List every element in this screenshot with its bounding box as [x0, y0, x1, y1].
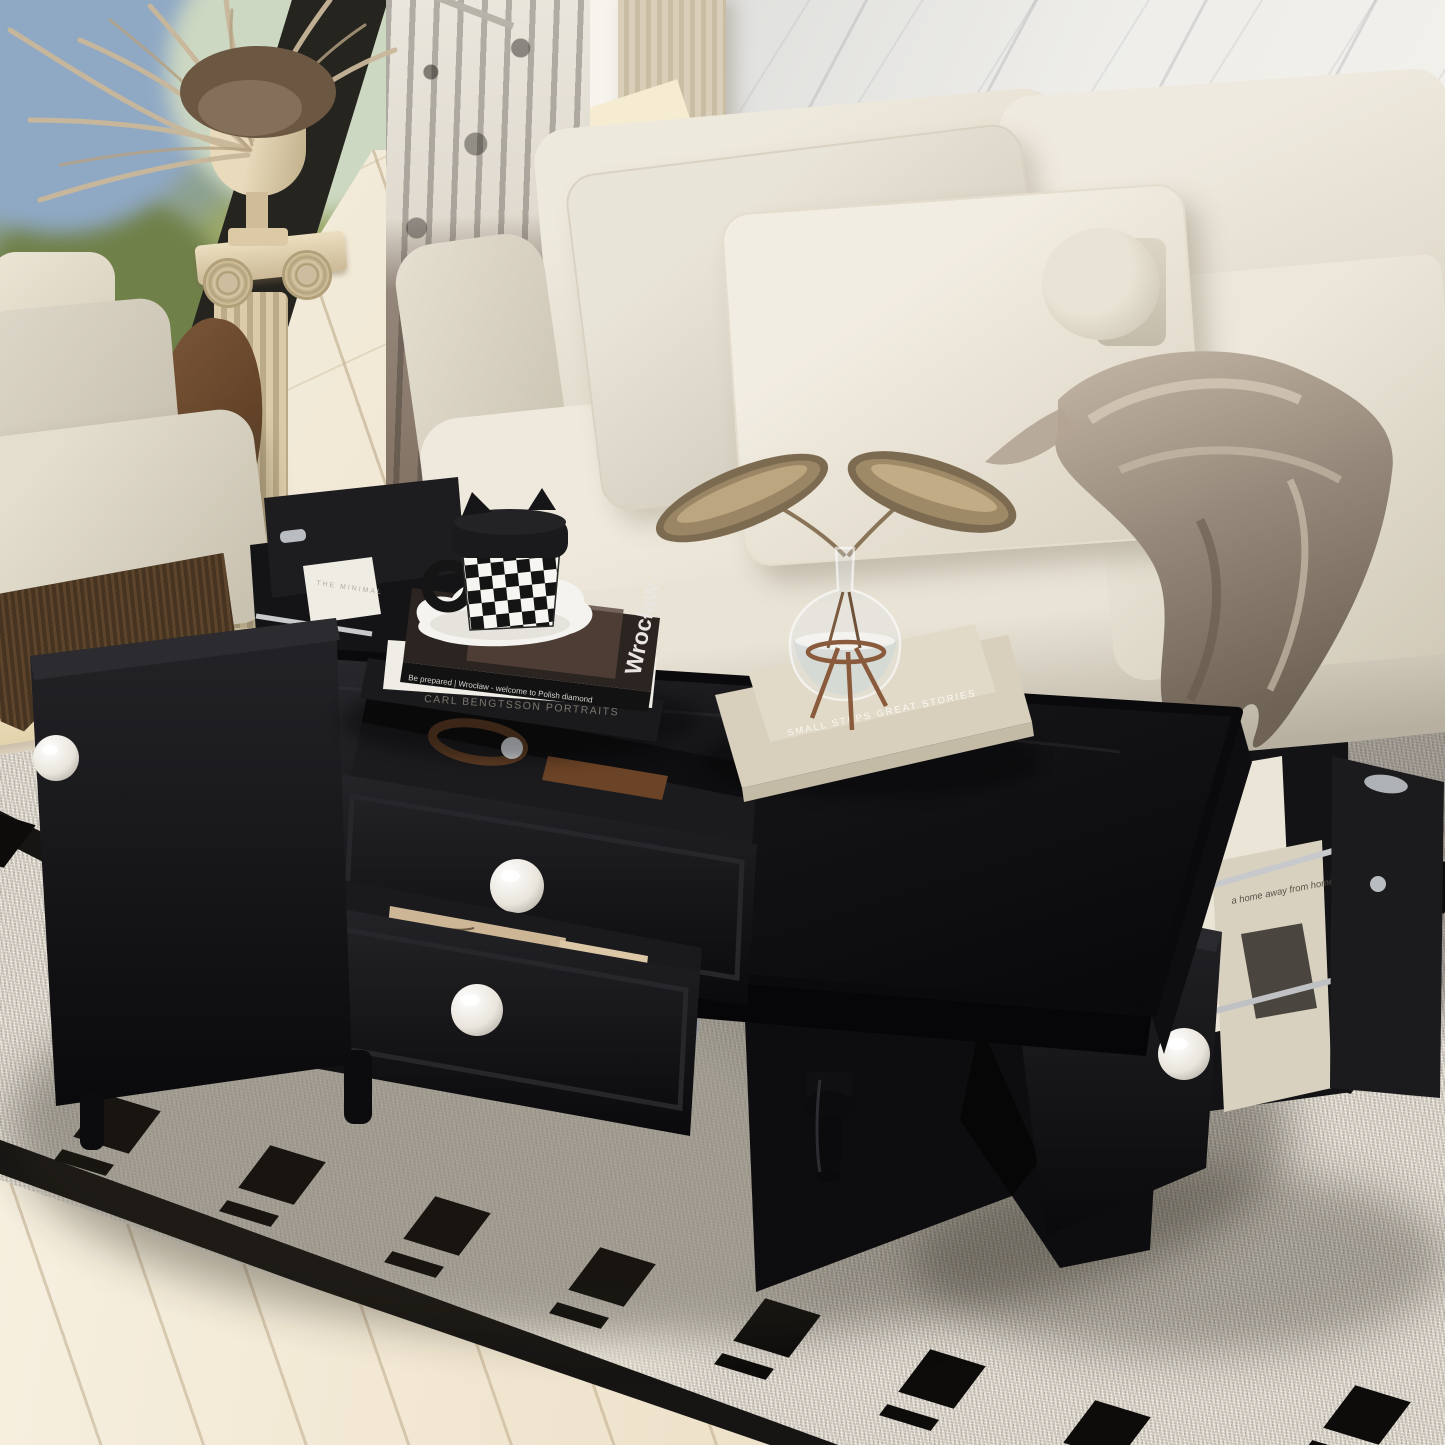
left-door-knob [33, 735, 79, 781]
table-foot-icon [80, 1092, 104, 1150]
cat-ear-icon [462, 492, 492, 516]
left-flip-door [30, 618, 352, 1106]
satin-blanket [985, 351, 1393, 751]
living-room-photo: THE MINIMAL a home away from home [0, 0, 1445, 1445]
coffee-table-group: THE MINIMAL a home away from home [0, 0, 1445, 1445]
drawer-top-knob [490, 859, 544, 913]
cat-ear-icon [528, 488, 556, 510]
drawer-bottom-knob [451, 984, 503, 1036]
right-flip-door [1330, 756, 1444, 1098]
checkered-mug [462, 548, 560, 630]
door-latch-icon [1370, 876, 1386, 892]
table-foot-icon [344, 1050, 372, 1124]
